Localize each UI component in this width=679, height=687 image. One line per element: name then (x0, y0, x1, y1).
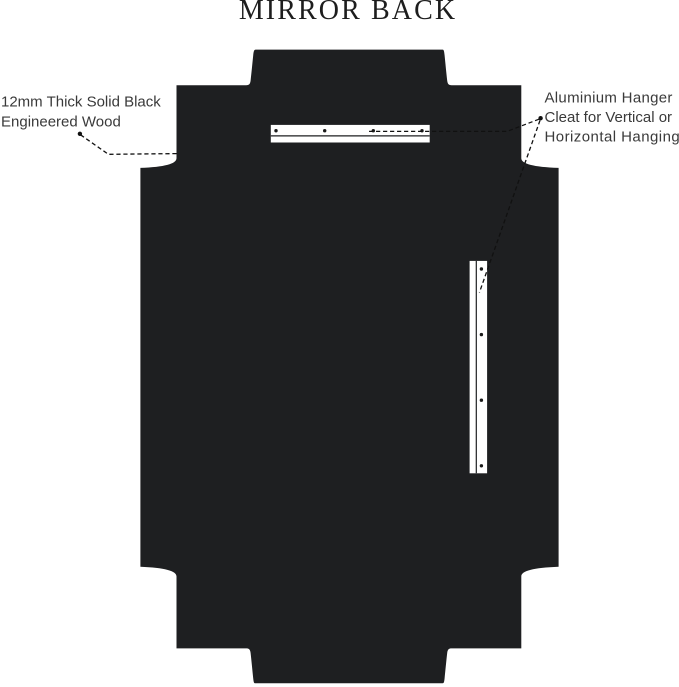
svg-text:Engineered Wood: Engineered Wood (1, 114, 121, 131)
svg-text:MIRROR BACK: MIRROR BACK (239, 0, 457, 26)
svg-text:Horizontal Hanging: Horizontal Hanging (545, 129, 679, 146)
svg-text:Cleat for Vertical or: Cleat for Vertical or (545, 109, 673, 126)
svg-text:12mm Thick Solid Black: 12mm Thick Solid Black (1, 94, 161, 111)
svg-text:Aluminium Hanger: Aluminium Hanger (545, 90, 673, 107)
